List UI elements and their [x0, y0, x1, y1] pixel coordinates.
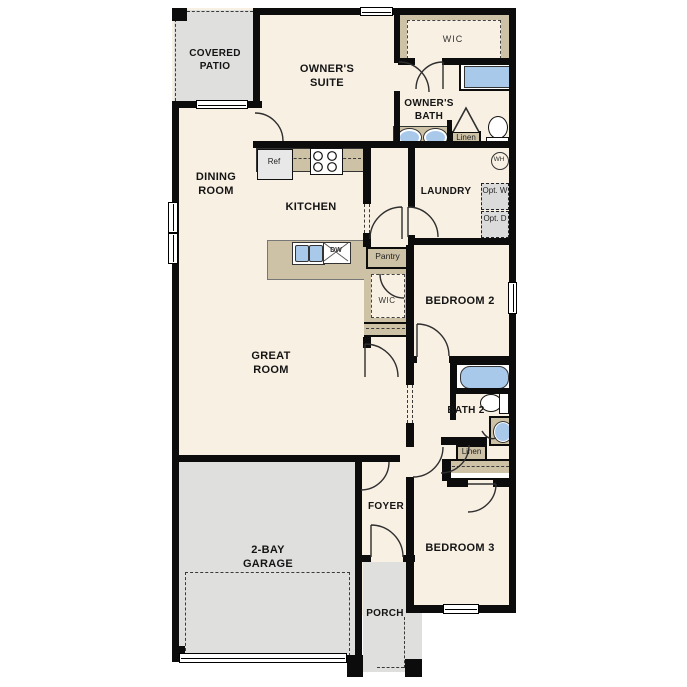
- wall-kitchen-right-b: [363, 233, 371, 247]
- wall-bath2-hall-stub: [441, 437, 487, 445]
- room-label-dining-room: DINING ROOM: [185, 170, 247, 199]
- wall-laundry-bottom: [408, 238, 516, 245]
- wall-greatroom-garage: [172, 455, 400, 462]
- fixture-label-pantry: Pantry: [366, 252, 409, 261]
- fixture-label-opt-d: Opt. D: [481, 214, 509, 224]
- floor-plan: COVERED PATIO OWNER'S SUITE WIC OWNER'S …: [0, 0, 687, 687]
- room-label-laundry: LAUNDRY: [410, 185, 482, 198]
- bg-mask-under-garage: [172, 662, 347, 687]
- room-label-owners-wic: WIC: [407, 35, 499, 45]
- opening-kitchen-hall-a: [364, 204, 365, 233]
- room-label-owners-suite: OWNER'S SUITE: [291, 62, 363, 91]
- patio-sliding-door: [196, 100, 248, 109]
- wall-stub-below-shelf: [363, 337, 371, 348]
- fixture-label-dw: DW: [324, 247, 348, 255]
- room-label-porch: PORCH: [362, 607, 408, 620]
- fixture-label-linen-owners: Linen: [451, 134, 481, 143]
- wall-suite-left: [253, 8, 260, 108]
- hall-shelf-rod: [366, 328, 405, 329]
- window-dining-2: [168, 233, 178, 264]
- stove-icon: [310, 148, 343, 175]
- fixture-label-linen-hall: Linen: [456, 448, 487, 457]
- wall-left-garage: [172, 462, 179, 660]
- window-dining-1: [168, 202, 178, 233]
- fixture-label-opt-w: Opt. W: [481, 186, 509, 196]
- room-label-bedroom-3: BEDROOM 3: [412, 541, 508, 555]
- room-label-owners-bath: OWNER'S BATH: [397, 97, 461, 123]
- wall-closet3-bottom-a: [447, 479, 468, 487]
- wall-left-main: [172, 101, 179, 462]
- wall-patio-corner-block: [172, 8, 187, 21]
- window-owners-suite: [360, 7, 393, 16]
- wall-laundry-left: [408, 148, 415, 207]
- wall-hall-b: [406, 423, 414, 447]
- garage-door: [179, 653, 347, 663]
- room-label-bath-2: BATH 2: [447, 404, 485, 417]
- wall-hall-a: [406, 363, 414, 385]
- bathtub2-icon: [460, 366, 509, 389]
- wall-bath2-under-tub: [455, 388, 516, 394]
- opening-greatroom-hall-a: [407, 385, 408, 423]
- room-label-kitchen: KITCHEN: [275, 200, 347, 214]
- room-label-covered-patio: COVERED PATIO: [181, 47, 249, 73]
- sink-basin-left: [295, 245, 309, 262]
- room-label-foyer: FOYER: [363, 500, 409, 513]
- patio-dashed-edge-top: [187, 11, 253, 12]
- window-bedroom2: [508, 282, 517, 314]
- opening-greatroom-hall-b: [412, 385, 413, 423]
- opening-kitchen-hall-b: [369, 204, 370, 233]
- wall-bath-divider-upper: [394, 15, 400, 63]
- patio-dashed-edge-left: [175, 14, 176, 101]
- toilet-owners-bowl: [488, 116, 508, 139]
- room-label-garage: 2-BAY GARAGE: [232, 543, 304, 572]
- wall-closet3-left-block: [442, 459, 451, 481]
- porch-dashed-bottom: [377, 667, 404, 668]
- window-bedroom3: [443, 604, 479, 614]
- room-label-great-room: GREAT ROOM: [240, 349, 302, 378]
- bedroom3-closet-rod: [452, 466, 514, 467]
- porch-floor-ext: [406, 613, 422, 659]
- doorway-bedroom2: [417, 356, 449, 363]
- fixture-label-wh: WH: [491, 156, 507, 163]
- wall-garage-corner-right-block: [347, 655, 363, 677]
- hall-shelf-closet: [364, 322, 407, 337]
- wall-kitchen-right-a: [363, 148, 371, 204]
- fixture-label-ref: Ref: [258, 158, 290, 167]
- sink-basin-right: [309, 245, 323, 262]
- driveway-apron-dashed: [185, 572, 350, 656]
- toilet-bath2-tank: [499, 392, 509, 414]
- shower-owners-glass: [464, 66, 512, 88]
- bg-mask-right: [422, 613, 516, 687]
- wall-porch-corner-right-block: [405, 659, 422, 677]
- room-label-bedroom-2: BEDROOM 2: [413, 294, 507, 308]
- doorway-wic-owners: [415, 58, 442, 65]
- doorway-front-entry: [371, 555, 403, 562]
- room-label-bedroom2-wic: WIC: [371, 297, 403, 306]
- bg-mask-under-porch: [363, 672, 406, 687]
